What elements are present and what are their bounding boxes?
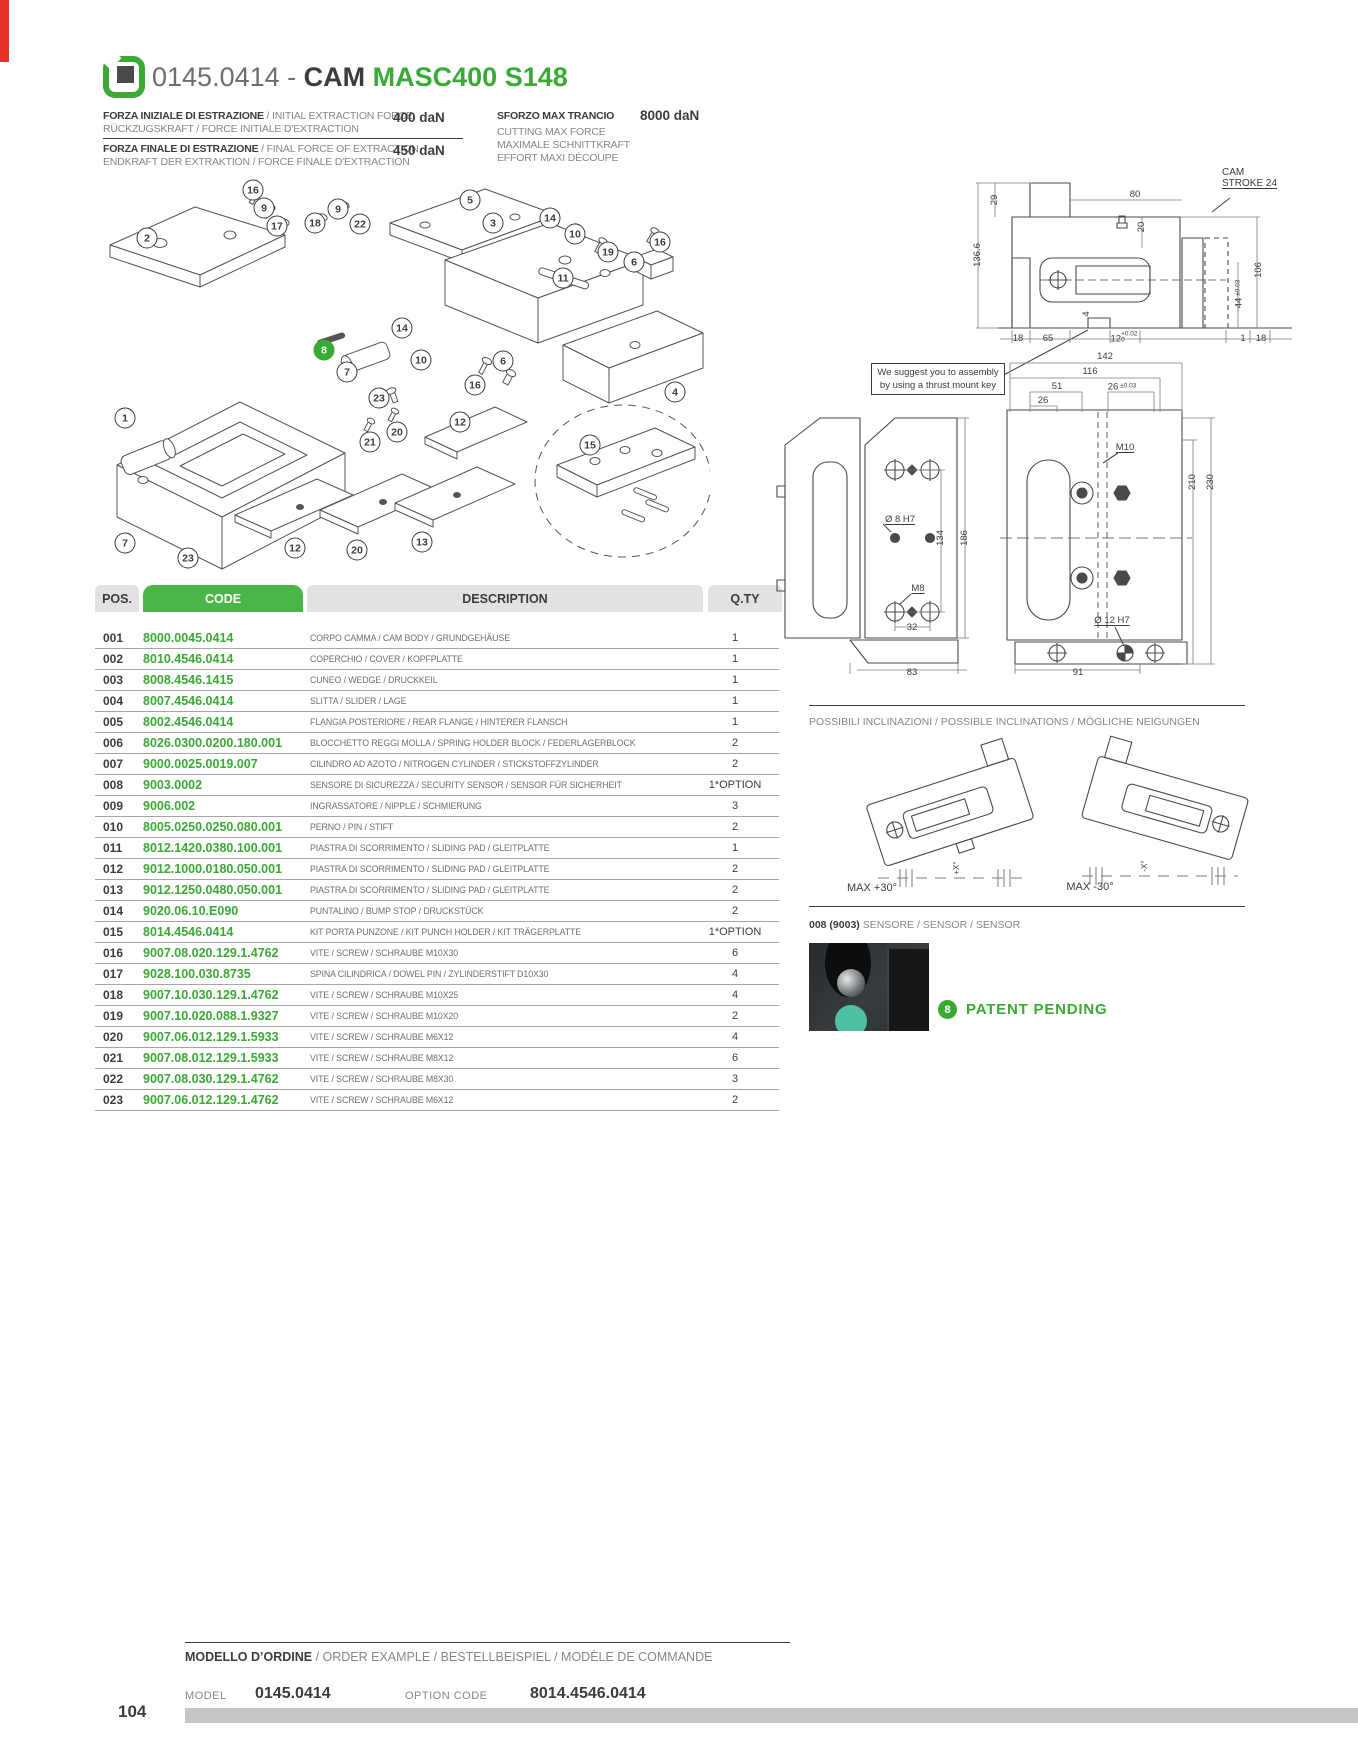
- row-pos: 023: [103, 1090, 123, 1110]
- row-qty: 6: [690, 1048, 780, 1068]
- product-code: 0145.0414: [152, 62, 280, 92]
- spec-initial-force-value: 400 daN: [393, 110, 445, 125]
- table-row: 0118012.1420.0380.100.001PIASTRA DI SCOR…: [95, 838, 779, 859]
- table-row: 0149020.06.10.E090PUNTALINO / BUMP STOP …: [95, 901, 779, 922]
- inclinations-title: POSSIBILI INCLINAZIONI / POSSIBLE INCLIN…: [809, 716, 1200, 728]
- balloon-8: 8: [314, 340, 335, 361]
- dim-label: Ø 8 H7: [885, 515, 915, 525]
- spec-max-cut-label: SFORZO MAX TRANCIO: [497, 110, 614, 123]
- row-pos: 021: [103, 1048, 123, 1068]
- row-description: VITE / SCREW / SCHRAUBE M6X12: [310, 1090, 453, 1111]
- row-pos: 006: [103, 733, 123, 753]
- row-pos: 017: [103, 964, 123, 984]
- balloon-4: 4: [665, 382, 686, 403]
- row-pos: 003: [103, 670, 123, 690]
- row-description: VITE / SCREW / SCHRAUBE M8X12: [310, 1048, 453, 1069]
- dim-label: 12+0.020: [1110, 332, 1137, 345]
- dim-label: 210: [1188, 474, 1198, 490]
- balloon-10: 10: [565, 224, 586, 245]
- row-code: 8005.0250.0250.080.001: [143, 817, 282, 837]
- balloon-1: 1: [115, 408, 136, 429]
- balloon-6: 6: [493, 351, 514, 372]
- patent-pending: 8 PATENT PENDING: [938, 1000, 1107, 1019]
- row-code: 9007.10.030.129.1.4762: [143, 985, 279, 1005]
- dim-label: 136.6: [973, 243, 983, 267]
- balloon-23: 23: [369, 388, 390, 409]
- balloon-23: 23: [178, 548, 199, 569]
- balloon-9: 9: [328, 199, 349, 220]
- dim-label: 134: [936, 530, 946, 546]
- row-description: PIASTRA DI SCORRIMENTO / SLIDING PAD / G…: [310, 859, 549, 880]
- footer-divider: [185, 1642, 790, 1643]
- row-description: PERNO / PIN / STIFT: [310, 817, 393, 838]
- row-code: 9007.08.030.129.1.4762: [143, 1069, 279, 1089]
- dim-label: 106: [1254, 262, 1264, 278]
- option-code-value: 8014.4546.0414: [530, 1685, 646, 1703]
- row-description: VITE / SCREW / SCHRAUBE M8X30: [310, 1069, 453, 1090]
- dim-label: 65: [1043, 334, 1054, 344]
- page-title: 0145.0414 - CAM MASC400 S148: [152, 62, 568, 93]
- dim-label: 29: [990, 195, 1000, 206]
- row-pos: 005: [103, 712, 123, 732]
- row-qty: 4: [690, 964, 780, 984]
- page-edge-mark: [0, 0, 9, 62]
- dim-label: 26 ±0.03: [1108, 382, 1137, 393]
- balloon-12: 12: [450, 412, 471, 433]
- table-row: 0129012.1000.0180.050.001PIASTRA DI SCOR…: [95, 859, 779, 880]
- row-code: 9028.100.030.8735: [143, 964, 251, 984]
- row-code: 9012.1250.0480.050.001: [143, 880, 282, 900]
- row-qty: 1*OPTION: [690, 922, 780, 942]
- table-row: 0169007.08.020.129.1.4762VITE / SCREW / …: [95, 943, 779, 964]
- row-pos: 016: [103, 943, 123, 963]
- row-pos: 018: [103, 985, 123, 1005]
- row-code: 9000.0025.0019.007: [143, 754, 258, 774]
- sensor-block: [887, 949, 929, 1031]
- dim-label: 186: [960, 530, 970, 546]
- row-code: 9007.06.012.129.1.4762: [143, 1090, 279, 1110]
- dim-label: 51: [1052, 382, 1063, 392]
- row-description: VITE / SCREW / SCHRAUBE M10X25: [310, 985, 458, 1006]
- row-description: SLITTA / SLIDER / LAGE: [310, 691, 406, 712]
- row-pos: 022: [103, 1069, 123, 1089]
- row-code: 9007.10.020.088.1.9327: [143, 1006, 279, 1026]
- row-description: SPINA CILINDRICA / DOWEL PIN / ZYLINDERS…: [310, 964, 548, 985]
- row-pos: 001: [103, 628, 123, 648]
- order-example-title: MODELLO D’ORDINE / ORDER EXAMPLE / BESTE…: [185, 1650, 712, 1664]
- assembly-note: We suggest you to assemblyby using a thr…: [871, 363, 1005, 395]
- row-code: 8002.4546.0414: [143, 712, 233, 732]
- dim-label: 44 ±0.03: [1234, 280, 1245, 309]
- balloon-15: 15: [580, 435, 601, 456]
- dim-label: 26: [1038, 396, 1049, 406]
- row-pos: 004: [103, 691, 123, 711]
- balloon-19: 19: [598, 242, 619, 263]
- row-qty: 6: [690, 943, 780, 963]
- dim-label: 83: [907, 668, 918, 678]
- balloon-7: 7: [337, 362, 358, 383]
- table-row: 0229007.08.030.129.1.4762VITE / SCREW / …: [95, 1069, 779, 1090]
- dim-label: 32: [907, 623, 918, 633]
- spec-divider: [103, 138, 463, 139]
- row-code: 8026.0300.0200.180.001: [143, 733, 282, 753]
- dim-label: MAX +30°: [847, 883, 897, 893]
- table-row: 0239007.06.012.129.1.4762VITE / SCREW / …: [95, 1090, 779, 1111]
- dim-label: 80: [1130, 190, 1141, 200]
- row-pos: 002: [103, 649, 123, 669]
- table-row: 0058002.4546.0414FLANGIA POSTERIORE / RE…: [95, 712, 779, 733]
- balloon-10: 10: [411, 350, 432, 371]
- page-number: 104: [118, 1702, 146, 1722]
- balloon-7: 7: [115, 533, 136, 554]
- row-description: PUNTALINO / BUMP STOP / DRUCKSTÜCK: [310, 901, 483, 922]
- balloon-20: 20: [347, 540, 368, 561]
- row-pos: 009: [103, 796, 123, 816]
- row-code: 8012.1420.0380.100.001: [143, 838, 282, 858]
- sensor-cable: [835, 1005, 867, 1031]
- spec-max-cut-value: 8000 daN: [640, 108, 699, 123]
- col-header-code: CODE: [143, 585, 303, 612]
- dim-label: 4: [1082, 311, 1092, 316]
- balloon-5: 5: [460, 190, 481, 211]
- product-model: MASC400 S148: [373, 62, 568, 92]
- table-row: 0089003.0002SENSORE DI SICUREZZA / SECUR…: [95, 775, 779, 796]
- row-description: CUNEO / WEDGE / DRUCKKEIL: [310, 670, 438, 691]
- row-description: SENSORE DI SICUREZZA / SECURITY SENSOR /…: [310, 775, 622, 796]
- row-description: COPERCHIO / COVER / KOPFPLATTE: [310, 649, 463, 670]
- table-row: 0048007.4546.0414SLITTA / SLIDER / LAGE1: [95, 691, 779, 712]
- model-label: MODEL: [185, 1690, 227, 1702]
- spec-max-cut-translations: CUTTING MAX FORCE MAXIMALE SCHNITTKRAFT …: [497, 126, 630, 165]
- row-qty: 2: [690, 1006, 780, 1026]
- row-qty: 4: [690, 1027, 780, 1047]
- product-type: CAM: [304, 62, 373, 92]
- row-description: PIASTRA DI SCORRIMENTO / SLIDING PAD / G…: [310, 880, 549, 901]
- sensor-caption: 008 (9003) SENSORE / SENSOR / SENSOR: [809, 919, 1020, 931]
- row-pos: 008: [103, 775, 123, 795]
- row-code: 8008.4546.1415: [143, 670, 233, 690]
- row-code: 9007.08.020.129.1.4762: [143, 943, 279, 963]
- dim-label: 91: [1073, 668, 1084, 678]
- row-pos: 012: [103, 859, 123, 879]
- row-description: FLANGIA POSTERIORE / REAR FLANGE / HINTE…: [310, 712, 567, 733]
- dim-label: 116: [1082, 367, 1097, 377]
- section-divider-2: [809, 906, 1245, 907]
- row-code: 8010.4546.0414: [143, 649, 233, 669]
- row-pos: 014: [103, 901, 123, 921]
- row-code: 8014.4546.0414: [143, 922, 233, 942]
- dim-label: 18: [1256, 334, 1267, 344]
- row-description: VITE / SCREW / SCHRAUBE M10X20: [310, 1006, 458, 1027]
- row-description: INGRASSATORE / NIPPLE / SCHMIERUNG: [310, 796, 482, 817]
- table-row: 0038008.4546.1415CUNEO / WEDGE / DRUCKKE…: [95, 670, 779, 691]
- balloon-12: 12: [285, 538, 306, 559]
- dim-label: MAX -30°: [1066, 882, 1113, 892]
- balloon-13: 13: [412, 532, 433, 553]
- dim-label: M10: [1116, 443, 1134, 453]
- dim-label: 20: [1137, 222, 1147, 233]
- table-row: 0219007.08.012.129.1.5933VITE / SCREW / …: [95, 1048, 779, 1069]
- row-qty: 4: [690, 985, 780, 1005]
- row-code: 9007.06.012.129.1.5933: [143, 1027, 279, 1047]
- row-description: PIASTRA DI SCORRIMENTO / SLIDING PAD / G…: [310, 838, 549, 859]
- spec-final-force-value: 450 daN: [393, 143, 445, 158]
- row-code: 9012.1000.0180.050.001: [143, 859, 282, 879]
- model-value: 0145.0414: [255, 1685, 331, 1703]
- row-code: 8000.0045.0414: [143, 628, 233, 648]
- row-code: 8007.4546.0414: [143, 691, 233, 711]
- balloon-9: 9: [254, 198, 275, 219]
- balloon-16: 16: [465, 375, 486, 396]
- balloon-6: 6: [624, 252, 645, 273]
- row-code: 9020.06.10.E090: [143, 901, 238, 921]
- footer-bar: [185, 1708, 1358, 1723]
- table-row: 0028010.4546.0414COPERCHIO / COVER / KOP…: [95, 649, 779, 670]
- row-description: CILINDRO AD AZOTO / NITROGEN CYLINDER / …: [310, 754, 599, 775]
- row-pos: 015: [103, 922, 123, 942]
- brand-cam-icon: [103, 56, 145, 98]
- catalog-page: 0145.0414 - CAM MASC400 S148 FORZA INIZI…: [0, 0, 1358, 1754]
- balloon-22: 22: [350, 214, 371, 235]
- dimension-drawings: [760, 150, 1300, 910]
- col-header-description: DESCRIPTION: [307, 585, 703, 612]
- sensor-photo: [809, 943, 929, 1031]
- cam-stroke-label: CAM STROKE 24: [1222, 167, 1277, 189]
- dim-label: 1: [1240, 334, 1245, 344]
- balloon-18: 18: [305, 213, 326, 234]
- row-code: 9003.0002: [143, 775, 202, 795]
- row-pos: 010: [103, 817, 123, 837]
- row-pos: 020: [103, 1027, 123, 1047]
- sensor-head: [837, 969, 865, 997]
- row-description: BLOCCHETTO REGGI MOLLA / SPRING HOLDER B…: [310, 733, 636, 754]
- balloon-3: 3: [483, 213, 504, 234]
- row-pos: 013: [103, 880, 123, 900]
- dim-label: Ø 12 H7: [1094, 616, 1129, 626]
- balloon-14: 14: [540, 208, 561, 229]
- row-pos: 011: [103, 838, 122, 858]
- row-description: CORPO CAMMA / CAM BODY / GRUNDGEHÄUSE: [310, 628, 510, 649]
- table-row: 0189007.10.030.129.1.4762VITE / SCREW / …: [95, 985, 779, 1006]
- balloon-21: 21: [360, 432, 381, 453]
- dim-label: 230: [1206, 474, 1216, 490]
- row-qty: 3: [690, 1069, 780, 1089]
- dim-label: +X°: [952, 861, 962, 874]
- balloon-11: 11: [553, 268, 574, 289]
- section-divider: [809, 705, 1245, 706]
- table-row: 0209007.06.012.129.1.5933VITE / SCREW / …: [95, 1027, 779, 1048]
- option-code-label: OPTION CODE: [405, 1690, 488, 1702]
- balloon-17: 17: [267, 216, 288, 237]
- balloon-20: 20: [387, 422, 408, 443]
- table-row: 0179028.100.030.8735SPINA CILINDRICA / D…: [95, 964, 779, 985]
- exploded-view-drawing: [95, 165, 710, 575]
- row-pos: 007: [103, 754, 123, 774]
- table-row: 0199007.10.020.088.1.9327VITE / SCREW / …: [95, 1006, 779, 1027]
- row-code: 9006.002: [143, 796, 195, 816]
- row-description: VITE / SCREW / SCHRAUBE M6X12: [310, 1027, 453, 1048]
- spec-initial-force-label: FORZA INIZIALE DI ESTRAZIONE / INITIAL E…: [103, 110, 413, 136]
- dim-label: M8: [911, 584, 924, 594]
- table-row: 0099006.002INGRASSATORE / NIPPLE / SCHMI…: [95, 796, 779, 817]
- table-row: 0108005.0250.0250.080.001PERNO / PIN / S…: [95, 817, 779, 838]
- table-row: 0018000.0045.0414CORPO CAMMA / CAM BODY …: [95, 628, 779, 649]
- row-description: VITE / SCREW / SCHRAUBE M10X30: [310, 943, 458, 964]
- row-code: 9007.08.012.129.1.5933: [143, 1048, 279, 1068]
- row-description: KIT PORTA PUNZONE / KIT PUNCH HOLDER / K…: [310, 922, 581, 943]
- table-row: 0158014.4546.0414KIT PORTA PUNZONE / KIT…: [95, 922, 779, 943]
- balloon-16: 16: [650, 232, 671, 253]
- table-row: 0139012.1250.0480.050.001PIASTRA DI SCOR…: [95, 880, 779, 901]
- patent-text: PATENT PENDING: [966, 1001, 1107, 1018]
- dim-label: -X°: [1140, 860, 1150, 871]
- col-header-pos: POS.: [95, 585, 139, 612]
- row-qty: 2: [690, 1090, 780, 1110]
- dim-label: 18: [1013, 334, 1024, 344]
- balloon-2: 2: [137, 228, 158, 249]
- balloon-14: 14: [392, 318, 413, 339]
- row-pos: 019: [103, 1006, 123, 1026]
- table-row: 0079000.0025.0019.007CILINDRO AD AZOTO /…: [95, 754, 779, 775]
- patent-badge: 8: [938, 1000, 957, 1019]
- table-row: 0068026.0300.0200.180.001BLOCCHETTO REGG…: [95, 733, 779, 754]
- dim-label: 142: [1097, 352, 1113, 362]
